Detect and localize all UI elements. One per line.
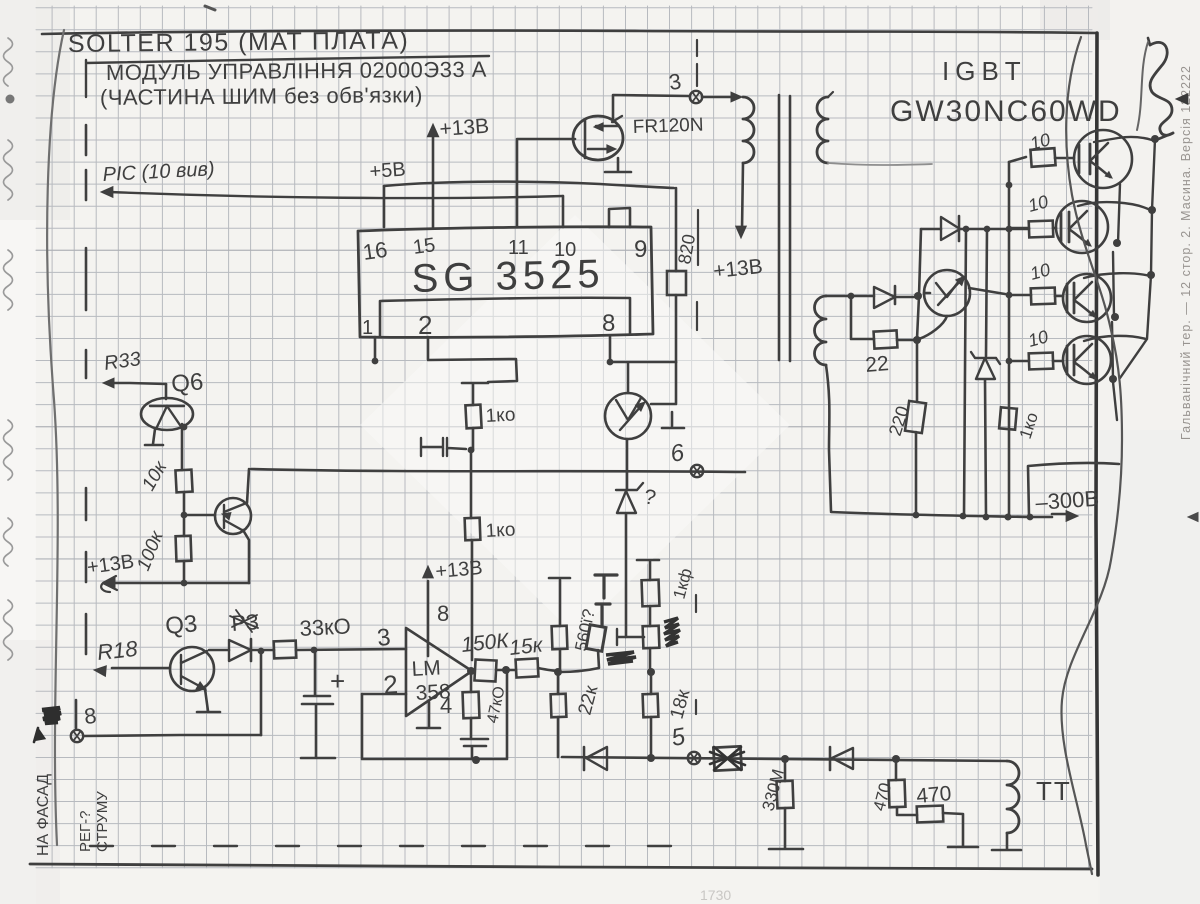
- svg-text:SOLTER 195 (МАТ ПЛАТА): SOLTER 195 (МАТ ПЛАТА): [68, 26, 410, 58]
- svg-text:+: +: [330, 666, 345, 696]
- svg-text:15к: 15к: [508, 634, 545, 660]
- svg-text:GW30NC60WD: GW30NC60WD: [890, 95, 1122, 128]
- svg-text:3: 3: [376, 624, 392, 652]
- svg-text:8: 8: [83, 703, 98, 729]
- svg-text:ТТ: ТТ: [1036, 776, 1072, 806]
- svg-text:FR120N: FR120N: [632, 115, 703, 138]
- svg-text:IGBT: IGBT: [942, 56, 1027, 86]
- svg-text:R18: R18: [96, 636, 140, 665]
- svg-text:9: 9: [634, 236, 647, 263]
- svg-text:470: 470: [915, 782, 952, 808]
- svg-text:НА ФАСАД: НА ФАСАД: [35, 774, 52, 856]
- svg-text:10: 10: [554, 239, 576, 261]
- svg-text:+13В: +13В: [435, 557, 484, 583]
- svg-text:МОДУЛЬ УПРАВЛІННЯ 02000Э33 А: МОДУЛЬ УПРАВЛІННЯ 02000Э33 А: [106, 57, 487, 85]
- svg-text:+13В: +13В: [439, 115, 490, 141]
- svg-text:2: 2: [382, 669, 399, 700]
- svg-text:22: 22: [864, 352, 889, 377]
- svg-text:Гальванічний тер. — 12 стор. 2: Гальванічний тер. — 12 стор. 2. Масина. …: [1179, 65, 1193, 440]
- svg-text:1ко: 1ко: [485, 519, 516, 542]
- svg-text:11: 11: [508, 237, 529, 259]
- svg-text:–300В: –300В: [1035, 486, 1100, 515]
- svg-text:(ЧАСТИНА ШИМ без обв'язки): (ЧАСТИНА ШИМ без обв'язки): [100, 82, 423, 110]
- svg-text:1: 1: [362, 317, 373, 339]
- svg-text:СТРУМУ: СТРУМУ: [94, 791, 111, 852]
- svg-text:LM: LM: [411, 656, 441, 680]
- svg-text:8: 8: [437, 601, 449, 626]
- svg-text:2: 2: [418, 310, 432, 340]
- svg-text:Q6: Q6: [170, 368, 204, 398]
- svg-text:1730: 1730: [700, 887, 731, 903]
- svg-text:1ко: 1ко: [485, 404, 516, 427]
- svg-text:33кО: 33кО: [299, 613, 351, 641]
- svg-text:16: 16: [361, 237, 389, 265]
- svg-text:15: 15: [412, 234, 437, 259]
- svg-text:Q3: Q3: [164, 610, 198, 640]
- svg-text:+5В: +5В: [369, 159, 407, 183]
- svg-text:8: 8: [602, 310, 615, 337]
- svg-text:4: 4: [440, 693, 452, 718]
